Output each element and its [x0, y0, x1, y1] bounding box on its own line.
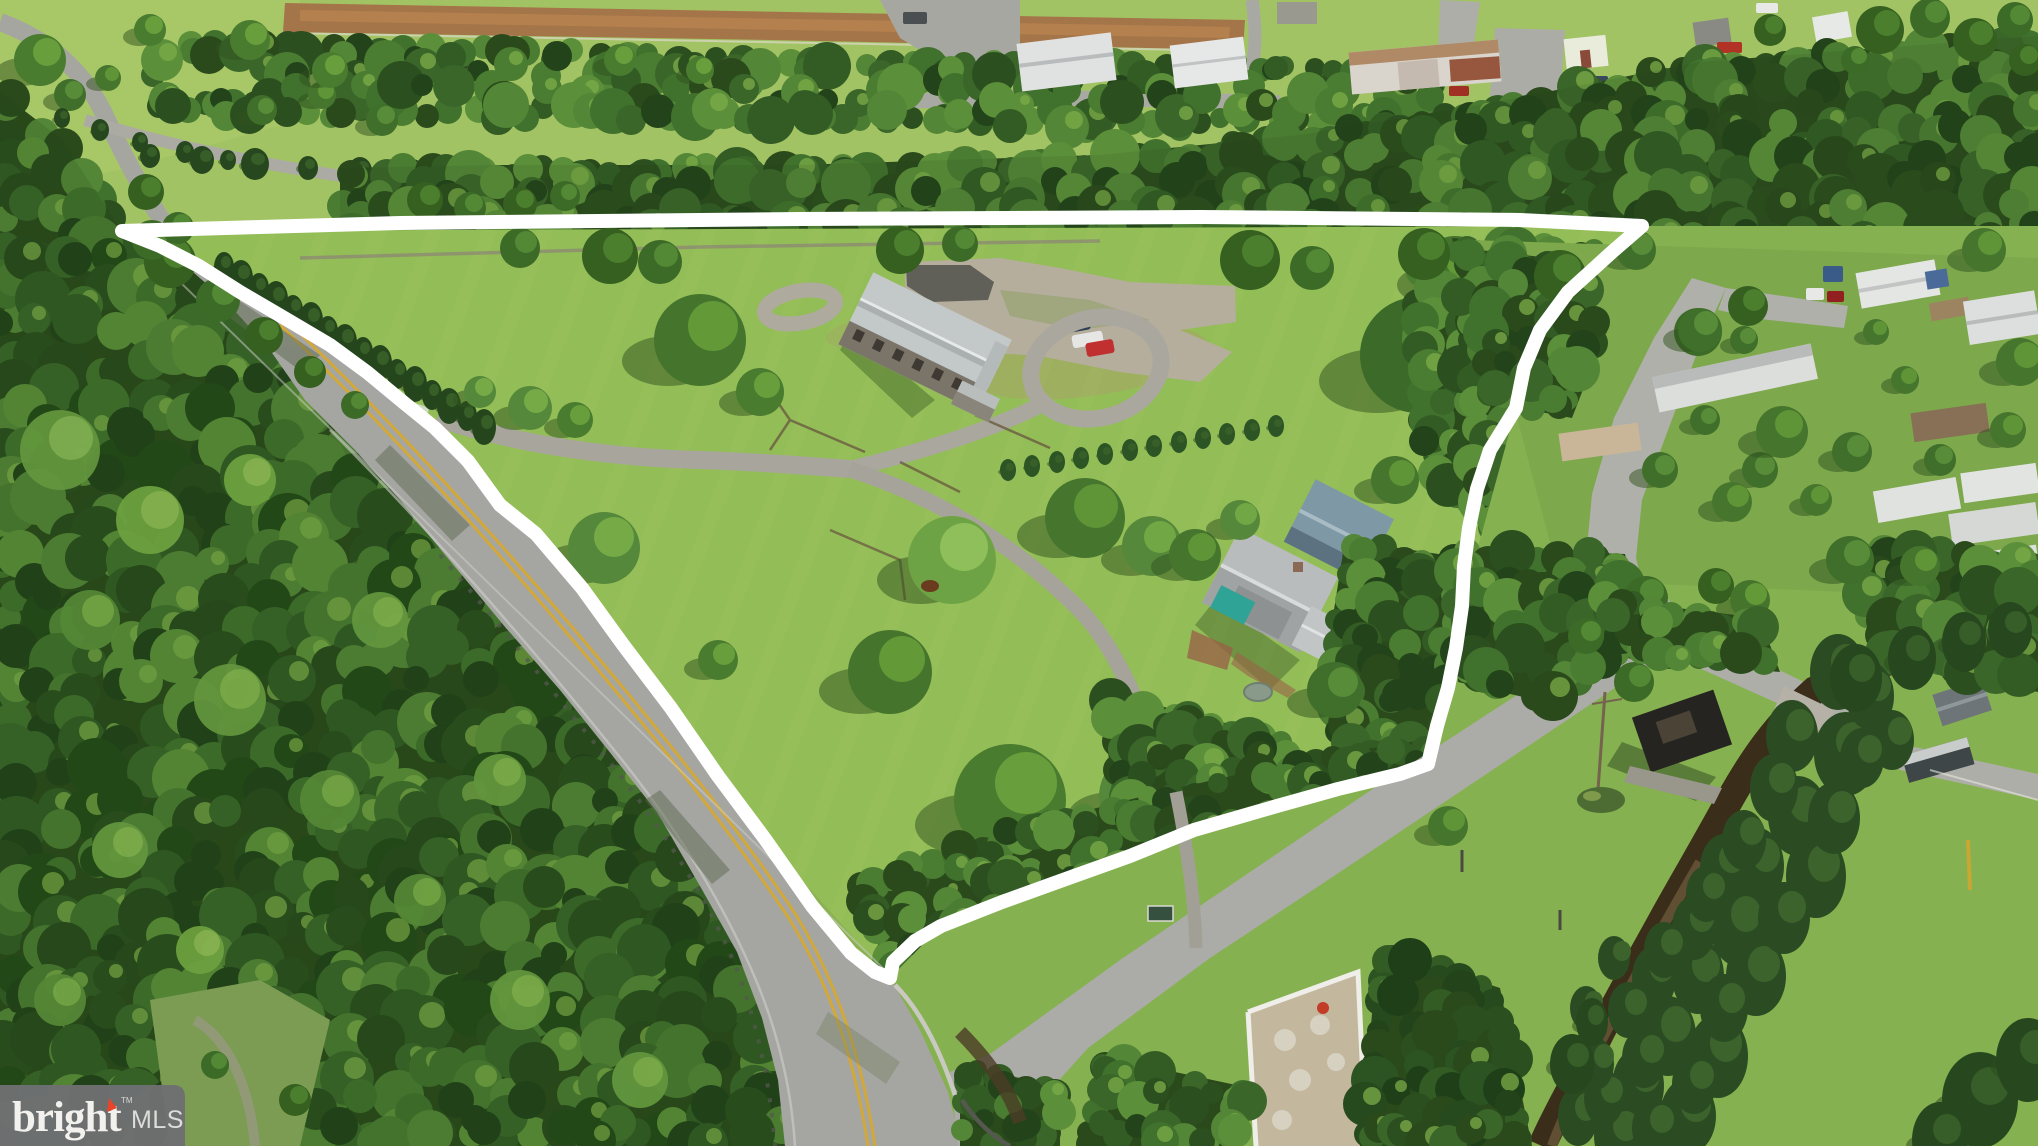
svg-text:MLS: MLS: [131, 1106, 184, 1134]
svg-text:TM: TM: [121, 1096, 133, 1105]
svg-text:bright: bright: [12, 1094, 122, 1141]
